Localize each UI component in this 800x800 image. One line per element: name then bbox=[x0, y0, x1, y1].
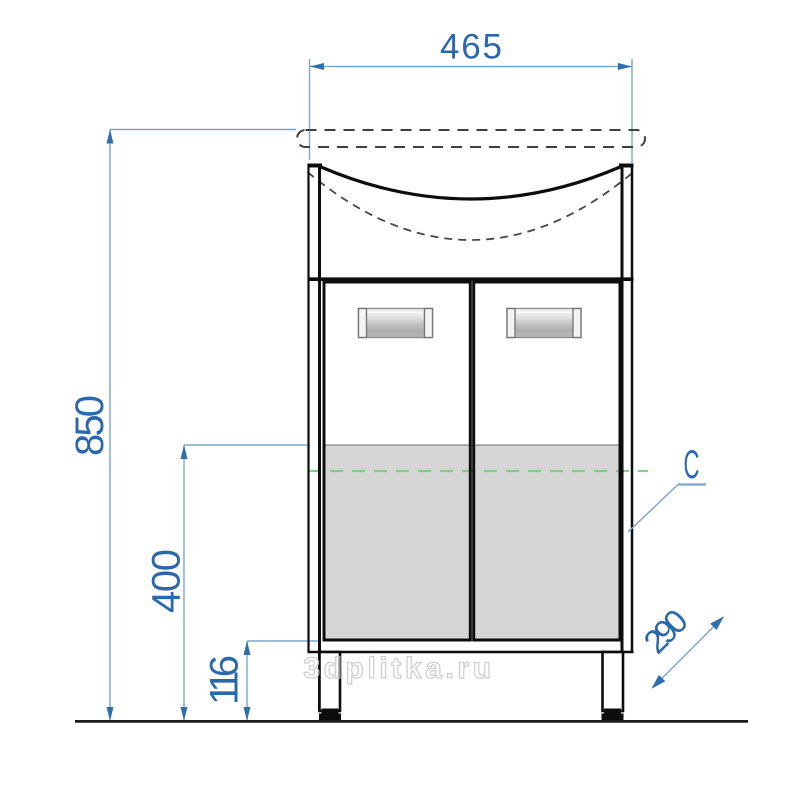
svg-text:465: 465 bbox=[440, 28, 502, 67]
svg-text:850: 850 bbox=[68, 395, 112, 456]
svg-text:116: 116 bbox=[203, 655, 247, 705]
svg-text:C: C bbox=[684, 442, 700, 487]
svg-text:3dplitka.ru: 3dplitka.ru bbox=[303, 652, 494, 685]
svg-text:400: 400 bbox=[145, 549, 189, 613]
